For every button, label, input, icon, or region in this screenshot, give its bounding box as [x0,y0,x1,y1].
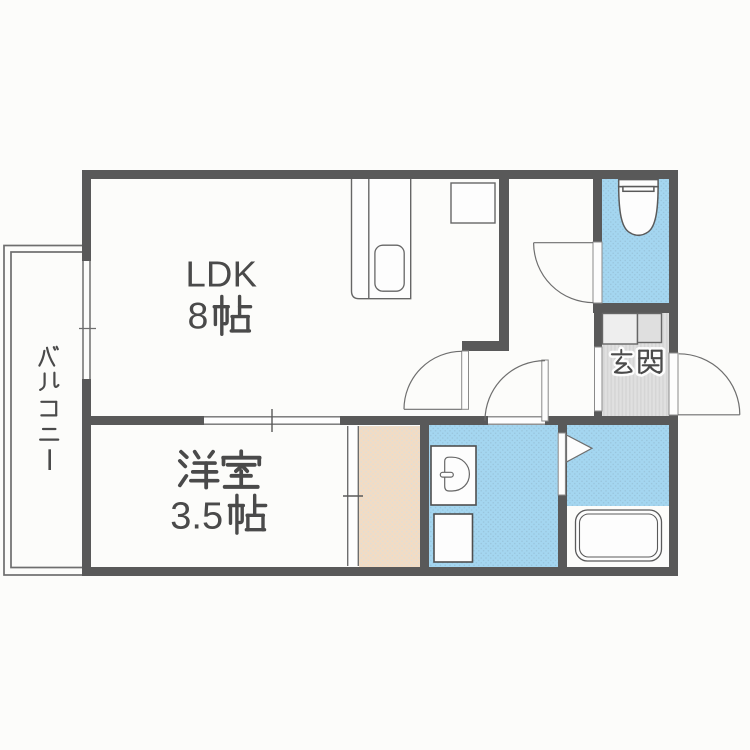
svg-text:LDK: LDK [186,254,258,295]
svg-text:8: 8 [188,295,209,337]
svg-text:3.5: 3.5 [170,496,223,538]
